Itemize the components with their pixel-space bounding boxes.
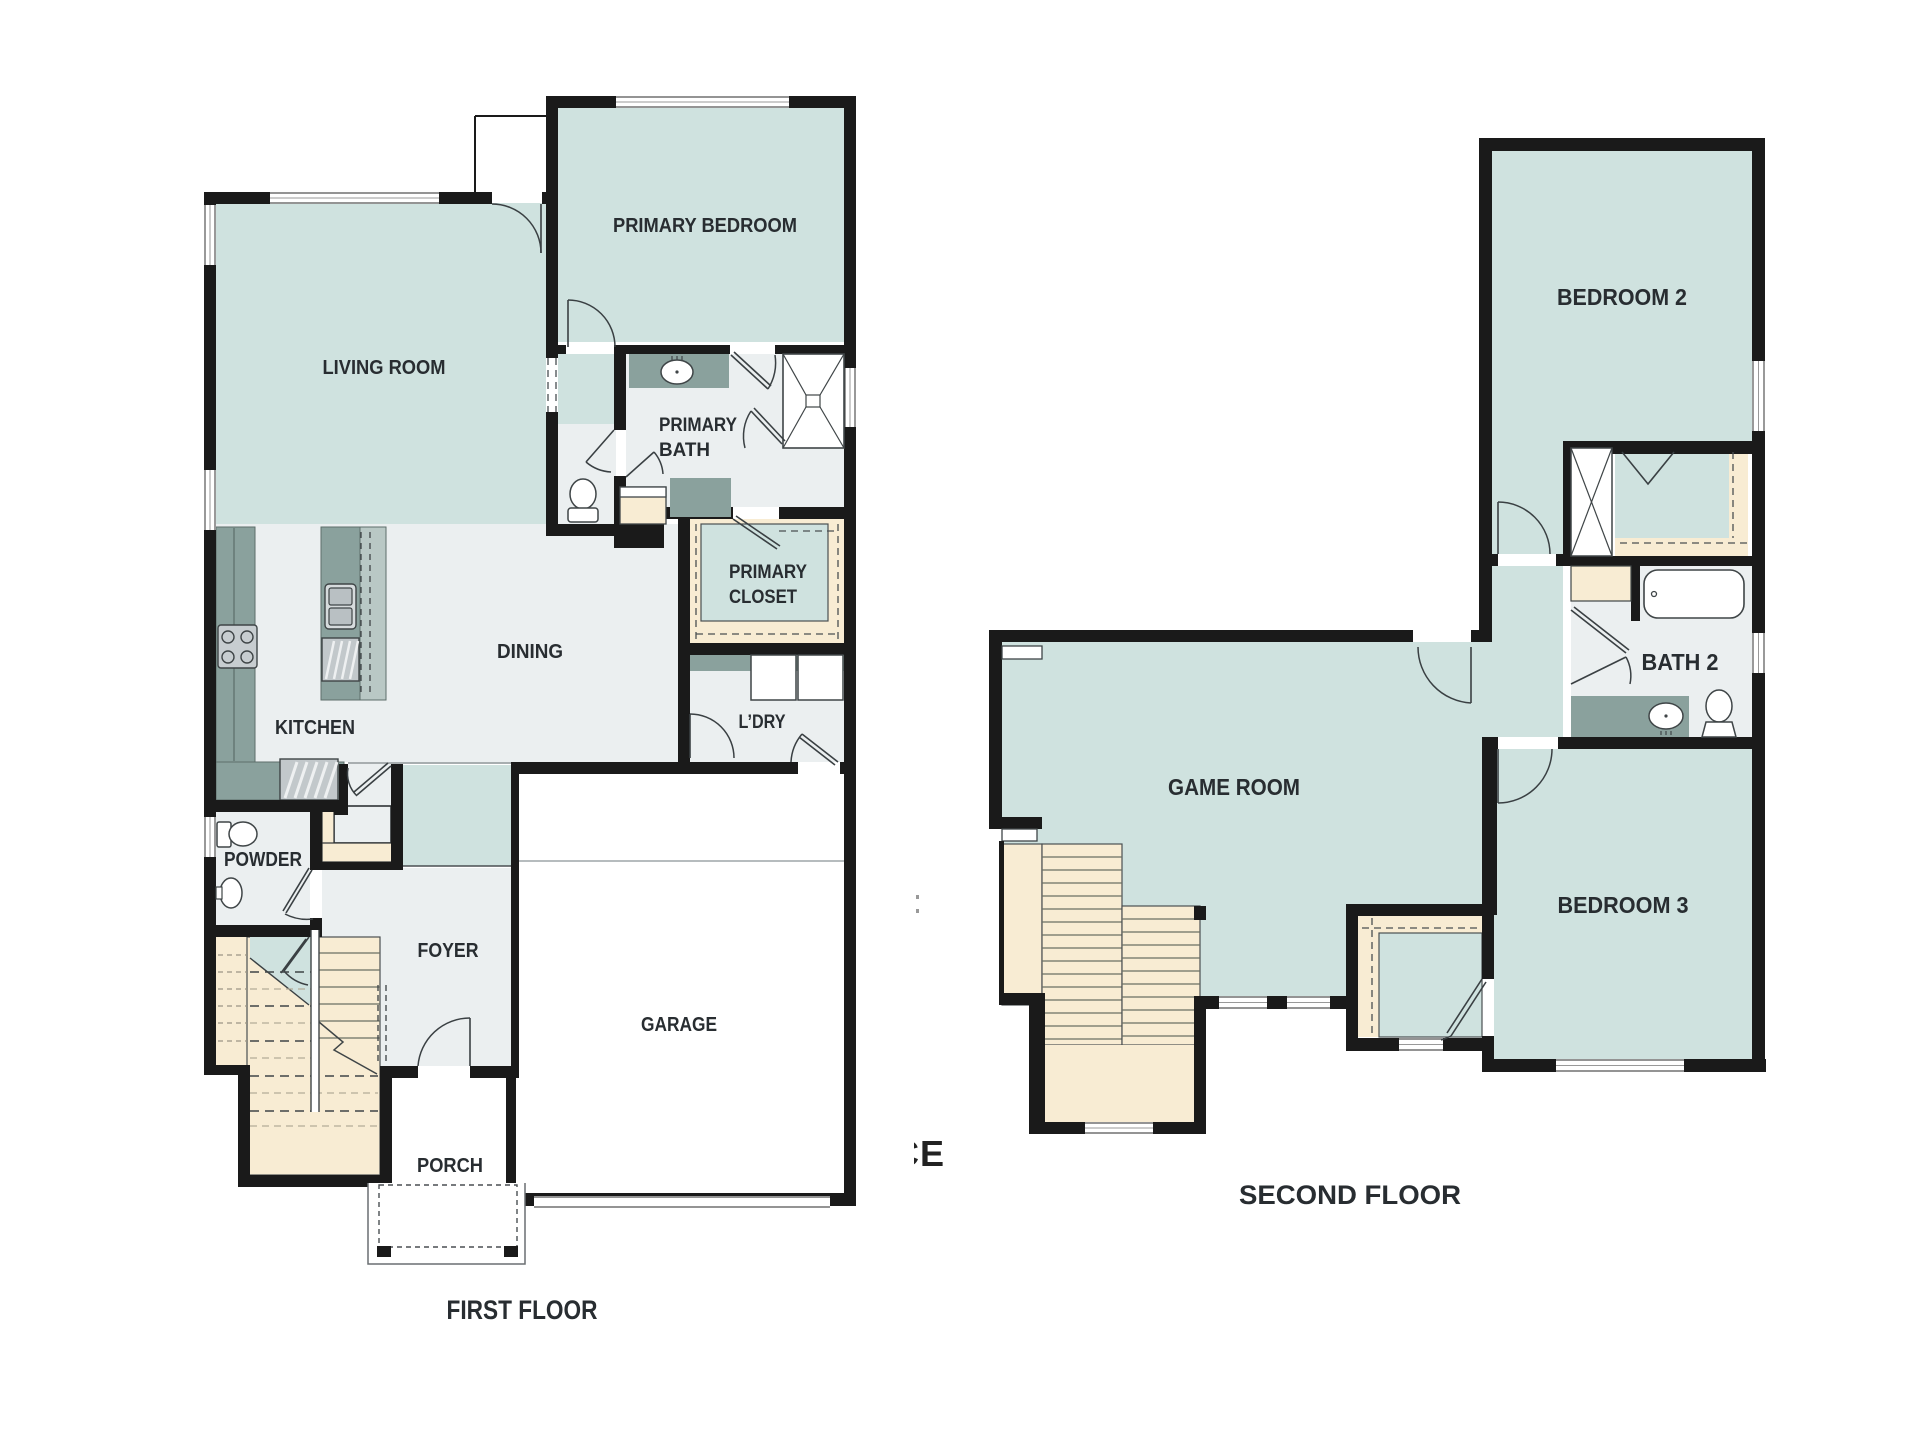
svg-text:BEDROOM 2: BEDROOM 2	[1557, 284, 1687, 310]
svg-text:POWDER: POWDER	[224, 849, 302, 871]
svg-text:SECOND FLOOR: SECOND FLOOR	[1239, 1180, 1461, 1210]
svg-text:L’DRY: L’DRY	[739, 712, 786, 733]
svg-text:BATH 2: BATH 2	[1642, 649, 1719, 675]
svg-text:PRIMARY BEDROOM: PRIMARY BEDROOM	[613, 215, 797, 237]
svg-text:KITCHEN: KITCHEN	[275, 717, 355, 739]
svg-text:GARAGE: GARAGE	[641, 1014, 717, 1036]
svg-text:PRIMARY: PRIMARY	[659, 415, 737, 436]
svg-text:LIVING ROOM: LIVING ROOM	[323, 357, 446, 379]
svg-text:FOYER: FOYER	[418, 940, 479, 962]
svg-text:BEDROOM 3: BEDROOM 3	[1558, 892, 1689, 918]
svg-text:DINING: DINING	[497, 641, 563, 663]
svg-text:PRIMARY: PRIMARY	[729, 562, 807, 583]
svg-text:GAME ROOM: GAME ROOM	[1168, 774, 1300, 800]
svg-text:BATH: BATH	[659, 440, 710, 461]
svg-text:FIRST FLOOR: FIRST FLOOR	[447, 1295, 598, 1325]
svg-text:PORCH: PORCH	[417, 1155, 483, 1177]
svg-text:CLOSET: CLOSET	[729, 587, 797, 608]
